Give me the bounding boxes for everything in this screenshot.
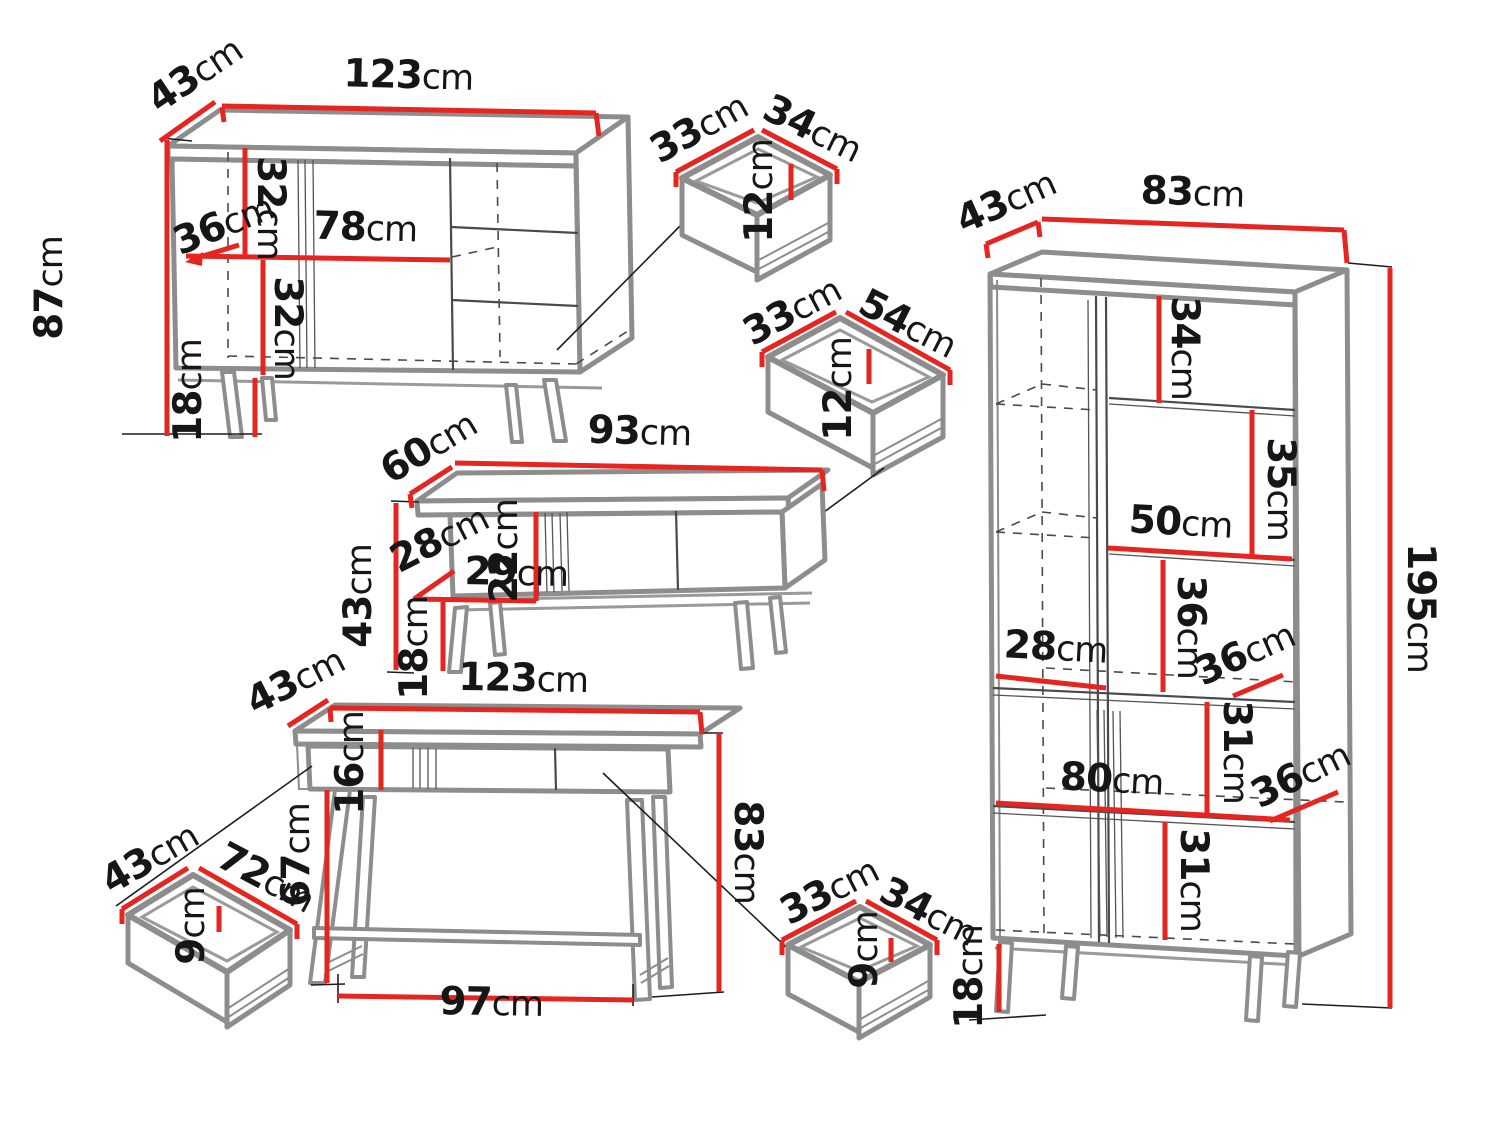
bookcase-depth-label: 43cm: [949, 160, 1062, 243]
bookcase-right-face: [1295, 270, 1351, 956]
bookcase-inner-width-full-dim-line: [996, 803, 1290, 820]
sideboard-lower-section-label: 32cm: [265, 276, 310, 380]
bookcase-compartment1-label: 34cm: [1162, 296, 1207, 400]
bookcase-hidden-back-edge: [1041, 278, 1044, 935]
drawer-d-height-label: 9cm: [842, 911, 887, 988]
console-base-label: 97cm: [439, 979, 543, 1026]
bookcase-divider: [1096, 296, 1109, 943]
bookcase-door-edge: [1088, 300, 1091, 938]
bookcase-height-label: 195cm: [1398, 543, 1443, 673]
bookcase-leg-label: 18cm: [947, 925, 992, 1029]
bookcase-diagram: 43cm 83cm 34cm 35cm 50cm 36cm 28cm 36cm …: [947, 160, 1443, 1029]
coffee-niche-width-label: 29cm: [464, 549, 568, 596]
sideboard-front-face: [172, 159, 580, 372]
console-height-label: 83cm: [725, 800, 770, 904]
coffee-leg-back-right: [770, 597, 786, 653]
console-leg-back-right: [653, 797, 672, 988]
console-drawer-divider: [555, 748, 556, 790]
drawer-b-height-label: 12cm: [816, 337, 861, 441]
drawer-c-height-label: 9cm: [169, 887, 214, 964]
sideboard-inner-width-label: 78cm: [313, 204, 418, 252]
drawer-a-height-label: 12cm: [737, 139, 782, 243]
coffee-table-diagram: 60cm 93cm 43cm 28cm 22cm 29cm 18cm: [336, 401, 828, 699]
bookcase-inner-width-full-label: 80cm: [1059, 754, 1165, 804]
bookcase-inner-width-right-dim-line: [1108, 548, 1292, 559]
bookcase-leg-front-right: [1246, 956, 1262, 1021]
bookcase-compartment5-label: 31cm: [1171, 828, 1216, 932]
sideboard-leg-back-right: [506, 385, 522, 442]
console-drawer-label: 16cm: [328, 711, 373, 815]
coffee-width-label: 93cm: [587, 408, 692, 456]
bookcase-hidden-shelf-a: [996, 384, 1097, 410]
sideboard-diagram: 43cm 123cm 87cm 32cm 36cm 78cm 32cm 18cm: [27, 27, 680, 443]
diagram-canvas: 43cm 123cm 87cm 32cm 36cm 78cm 32cm 18cm…: [0, 0, 1500, 1125]
bookcase-lower-grooves: [1097, 710, 1123, 938]
sideboard-leg-back-left: [262, 378, 276, 420]
sideboard-under-rail: [178, 380, 602, 388]
bookcase-inner-width-right-label: 50cm: [1128, 497, 1234, 547]
drawer-a-diagram: 33cm 34cm 12cm: [643, 83, 869, 280]
bookcase-front-outline: [990, 274, 1296, 956]
coffee-leg-label: 18cm: [392, 596, 437, 700]
bookcase-compartment2-label: 35cm: [1258, 437, 1303, 541]
sideboard-width-label: 123cm: [343, 51, 474, 99]
bookcase-inner-width-left-label: 28cm: [1003, 622, 1109, 672]
console-width-label: 123cm: [458, 655, 589, 702]
coffee-height-label: 43cm: [336, 544, 381, 648]
console-side-stretchers: [325, 946, 669, 983]
coffee-leg-back-left: [490, 602, 505, 655]
coffee-leg-front-right: [735, 602, 753, 669]
bookcase-left-wall-inner: [997, 280, 1000, 936]
bookcase-width-label: 83cm: [1140, 168, 1245, 217]
bookcase-leg-back-right: [1284, 952, 1300, 1007]
bookcase-hidden-shelf-b: [996, 512, 1097, 538]
sideboard-leg-label: 18cm: [166, 339, 211, 443]
sideboard-leg-front-right: [544, 380, 566, 441]
sideboard-height-label: 87cm: [27, 236, 72, 340]
bookcase-leg-back-left: [1062, 946, 1078, 999]
furniture-dimension-diagram: 43cm 123cm 87cm 32cm 36cm 78cm 32cm 18cm…: [0, 0, 1500, 1125]
